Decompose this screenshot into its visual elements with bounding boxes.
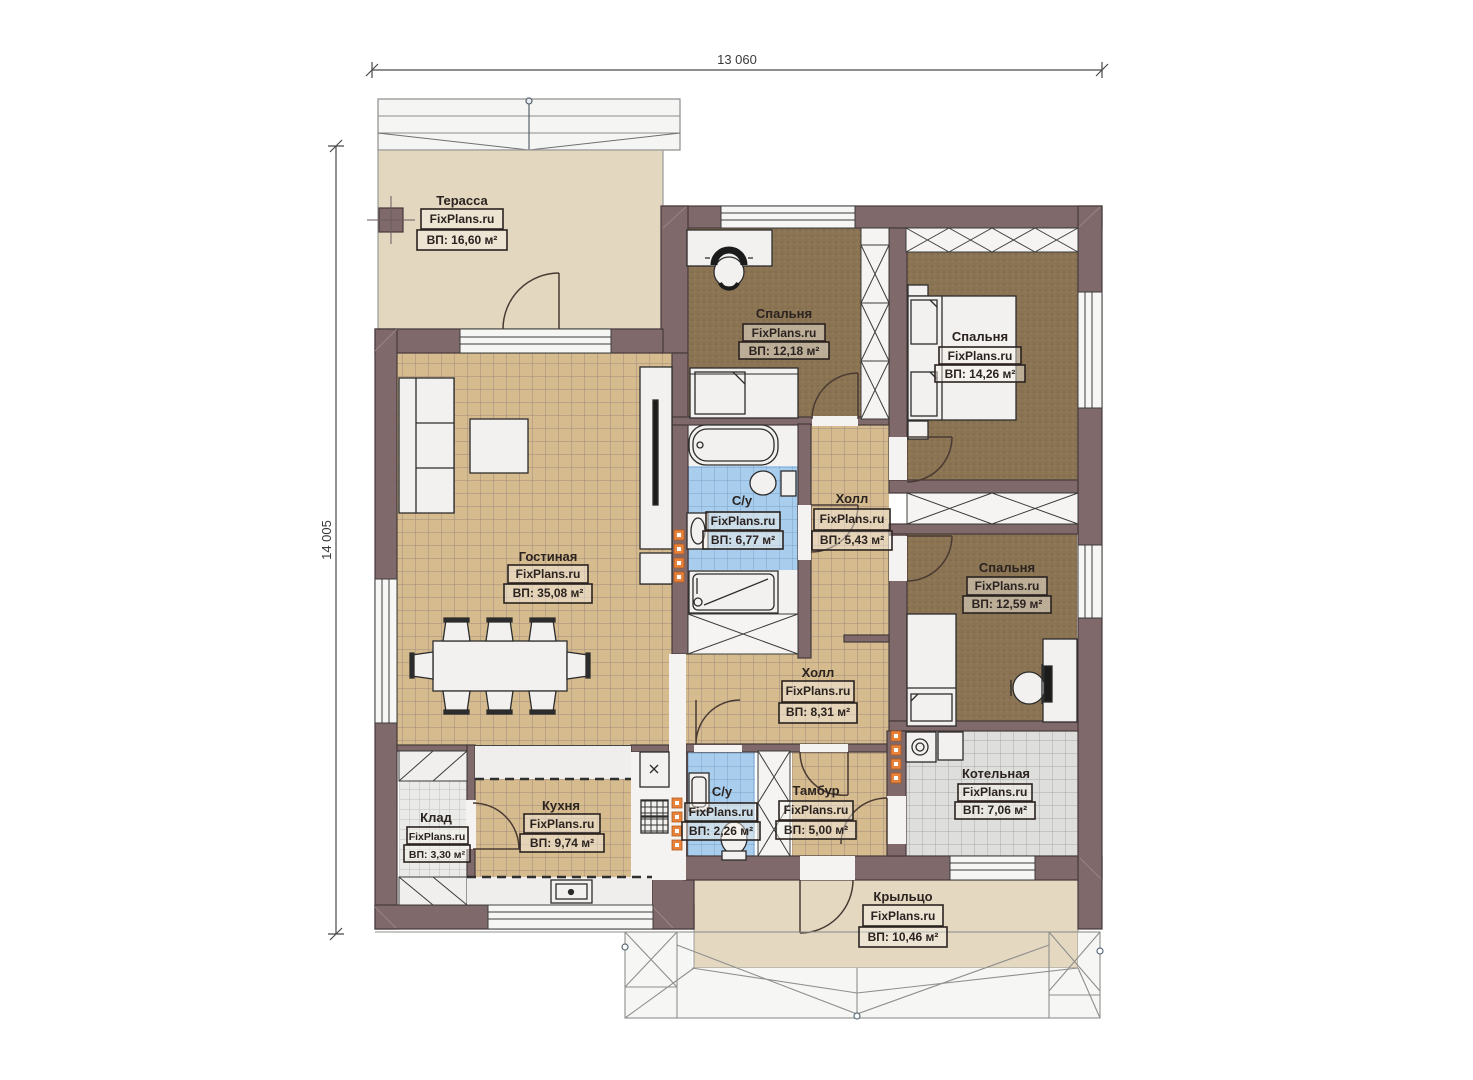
svg-text:FixPlans.ru: FixPlans.ru [530,817,595,831]
svg-text:FixPlans.ru: FixPlans.ru [409,831,466,843]
svg-text:FixPlans.ru: FixPlans.ru [820,512,885,526]
svg-text:Клад: Клад [420,810,452,825]
svg-text:Крыльцо: Крыльцо [873,889,932,904]
svg-text:ВП: 12,59 м²: ВП: 12,59 м² [972,597,1043,611]
svg-text:ВП: 5,43 м²: ВП: 5,43 м² [820,533,884,547]
svg-text:ВП: 16,60 м²: ВП: 16,60 м² [427,233,498,247]
svg-text:FixPlans.ru: FixPlans.ru [963,785,1028,799]
svg-text:ВП: 3,30 м²: ВП: 3,30 м² [409,849,466,861]
svg-text:ВП: 14,26 м²: ВП: 14,26 м² [945,367,1016,381]
svg-text:FixPlans.ru: FixPlans.ru [948,349,1013,363]
svg-text:ВП: 8,31 м²: ВП: 8,31 м² [786,705,850,719]
svg-text:ВП: 9,74 м²: ВП: 9,74 м² [530,836,594,850]
svg-text:FixPlans.ru: FixPlans.ru [786,684,851,698]
svg-text:Спальня: Спальня [756,306,812,321]
svg-text:ВП: 7,06 м²: ВП: 7,06 м² [963,803,1027,817]
svg-text:С/у: С/у [712,784,733,799]
svg-text:Кухня: Кухня [542,798,580,813]
svg-text:13 060: 13 060 [717,52,757,67]
svg-text:Холл: Холл [836,491,869,506]
svg-text:FixPlans.ru: FixPlans.ru [711,514,776,528]
svg-text:Гостиная: Гостиная [519,549,578,564]
svg-text:FixPlans.ru: FixPlans.ru [975,579,1040,593]
svg-text:ВП: 6,77 м²: ВП: 6,77 м² [711,533,775,547]
svg-text:FixPlans.ru: FixPlans.ru [430,212,495,226]
svg-text:С/у: С/у [732,493,753,508]
svg-text:FixPlans.ru: FixPlans.ru [752,326,817,340]
svg-text:FixPlans.ru: FixPlans.ru [784,803,849,817]
svg-text:ВП: 2,26 м²: ВП: 2,26 м² [689,824,753,838]
svg-text:FixPlans.ru: FixPlans.ru [516,567,581,581]
svg-text:ВП: 5,00 м²: ВП: 5,00 м² [784,823,848,837]
svg-text:ВП: 35,08 м²: ВП: 35,08 м² [513,586,584,600]
svg-text:Тамбур: Тамбур [792,783,839,798]
svg-text:Спальня: Спальня [952,329,1008,344]
svg-text:FixPlans.ru: FixPlans.ru [689,805,754,819]
svg-text:FixPlans.ru: FixPlans.ru [871,909,936,923]
svg-text:Котельная: Котельная [962,766,1030,781]
svg-text:Спальня: Спальня [979,560,1035,575]
svg-text:14 005: 14 005 [319,520,334,560]
svg-text:ВП: 10,46 м²: ВП: 10,46 м² [868,930,939,944]
svg-text:ВП: 12,18 м²: ВП: 12,18 м² [749,344,820,358]
svg-text:Холл: Холл [802,665,835,680]
svg-text:Терасса: Терасса [436,193,488,208]
